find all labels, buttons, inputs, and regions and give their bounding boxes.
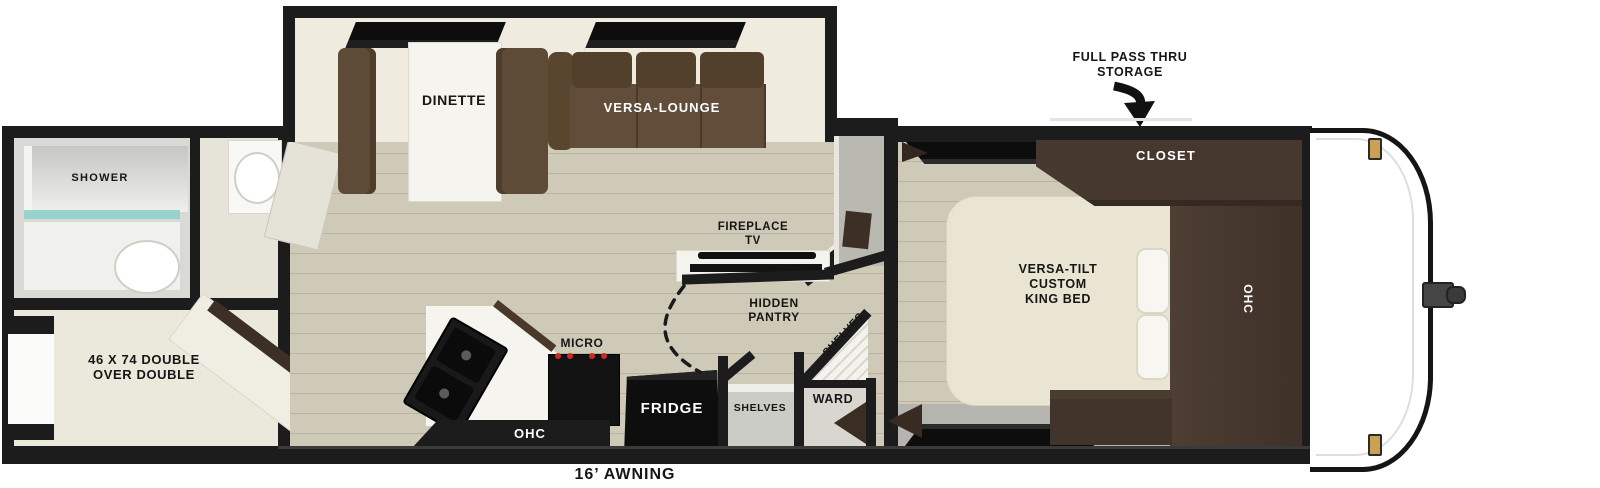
fridge-label: FRIDGE [630, 400, 714, 418]
tv-screen [698, 252, 816, 259]
bunk-bed-label: 46 X 74 DOUBLE OVER DOUBLE [44, 352, 244, 383]
range-knob-1 [555, 353, 561, 359]
lounge-seam-2 [700, 84, 702, 148]
closet-label: CLOSET [1126, 148, 1206, 163]
lounge-label: VERSA-LOUNGE [572, 100, 752, 115]
dinette-label: DINETTE [406, 92, 502, 109]
micro-label: MICRO [548, 336, 616, 350]
ward-wall-top [794, 380, 876, 388]
dinette-table [408, 42, 502, 202]
shelves-closet-label: SHELVES [726, 402, 794, 414]
bedroom-ohc-label: OHC [1241, 277, 1255, 321]
range-micro [548, 354, 620, 426]
fireplace-label: FIREPLACE TV [702, 221, 804, 248]
range-knob-4 [601, 353, 607, 359]
bath-partition-wall [190, 138, 200, 310]
pass-thru-storage-line1: FULL PASS THRU [1060, 50, 1200, 65]
range-knob-3 [589, 353, 595, 359]
storage-arrow-curve [1114, 86, 1141, 106]
bunk-bed-label-line1: 46 X 74 DOUBLE [44, 352, 244, 367]
fireplace-label-line2: TV [702, 235, 804, 249]
dinette-bench-right [496, 48, 548, 194]
king-bed-label-line2: CUSTOM [1004, 277, 1112, 292]
toilet [114, 240, 180, 294]
awning-label: 16’ AWNING [555, 466, 695, 485]
slideout-window-right [584, 22, 746, 51]
pass-thru-storage-label: FULL PASS THRU STORAGE [1060, 50, 1200, 80]
lounge-seam-1 [636, 84, 638, 148]
pass-thru-storage-line2: STORAGE [1060, 65, 1200, 80]
ward-label: WARD [802, 392, 864, 407]
bath-bunk-divider-wall [14, 298, 278, 310]
bed-pillow-1 [1136, 248, 1170, 314]
fireplace-label-line1: FIREPLACE [702, 221, 804, 235]
front-cap-clip-top [1368, 138, 1382, 160]
hidden-pantry-label: HIDDEN PANTRY [726, 296, 822, 324]
dinette-bench-left [338, 48, 376, 194]
bed-foot-bench [1050, 390, 1172, 445]
bunk-window-frame-bottom [8, 424, 54, 440]
king-bed-label: VERSA-TILT CUSTOM KING BED [1004, 262, 1112, 306]
bed-pillow-2 [1136, 314, 1170, 380]
lounge-back-cushion-3 [700, 52, 764, 88]
bunk-bed-label-line2: OVER DOUBLE [44, 367, 244, 382]
hitch-ball [1446, 286, 1466, 304]
front-cap-clip-bottom [1368, 434, 1382, 456]
main-bottom-wall [278, 446, 1312, 464]
front-cap-inner-trim [1316, 138, 1414, 456]
hidden-pantry-line1: HIDDEN [726, 296, 822, 310]
shelves-closet [728, 384, 794, 454]
storage-door-seam [1050, 118, 1192, 121]
king-bed-label-line3: KING BED [1004, 292, 1112, 307]
king-bed-label-line1: VERSA-TILT [1004, 262, 1112, 277]
range-knob-2 [567, 353, 573, 359]
kitchen-ohc-label: OHC [486, 426, 574, 441]
rv-floorplan: SHOWER 46 X 74 DOUBLE OVER DOUBLE DINETT… [0, 0, 1600, 488]
hidden-pantry-line2: PANTRY [726, 310, 822, 324]
bedroom-partition-wall [884, 126, 898, 464]
ward-wall-right [866, 378, 876, 448]
lounge-back-cushion-1 [572, 52, 632, 88]
shower-glass [24, 210, 180, 219]
alcove-tv-panel [842, 211, 872, 250]
bunk-window-frame-top [8, 316, 54, 334]
storage-arrow-head [1124, 101, 1155, 127]
lounge-back-cushion-2 [636, 52, 696, 88]
lounge-seat [570, 84, 766, 148]
shower-label: SHOWER [24, 172, 176, 185]
